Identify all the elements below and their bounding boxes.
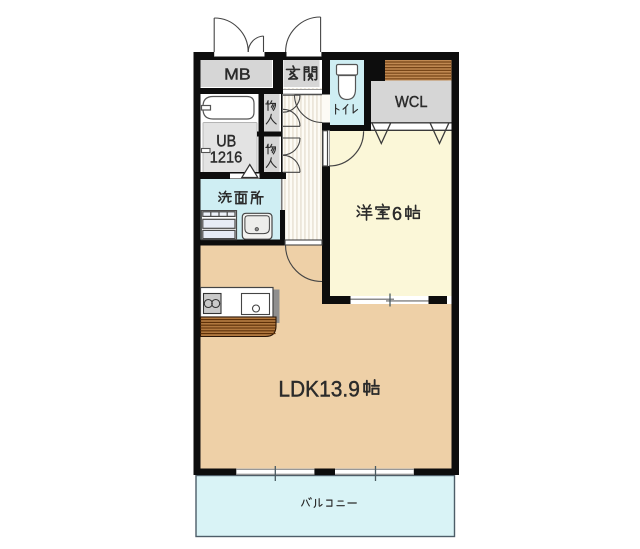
svg-text:MB: MB	[224, 67, 251, 84]
svg-text:LDK13.9: LDK13.9	[278, 376, 360, 401]
svg-text:WCL: WCL	[395, 94, 428, 111]
svg-text:6: 6	[392, 204, 402, 224]
svg-text:UB: UB	[216, 133, 236, 151]
svg-text:1216: 1216	[210, 150, 243, 167]
